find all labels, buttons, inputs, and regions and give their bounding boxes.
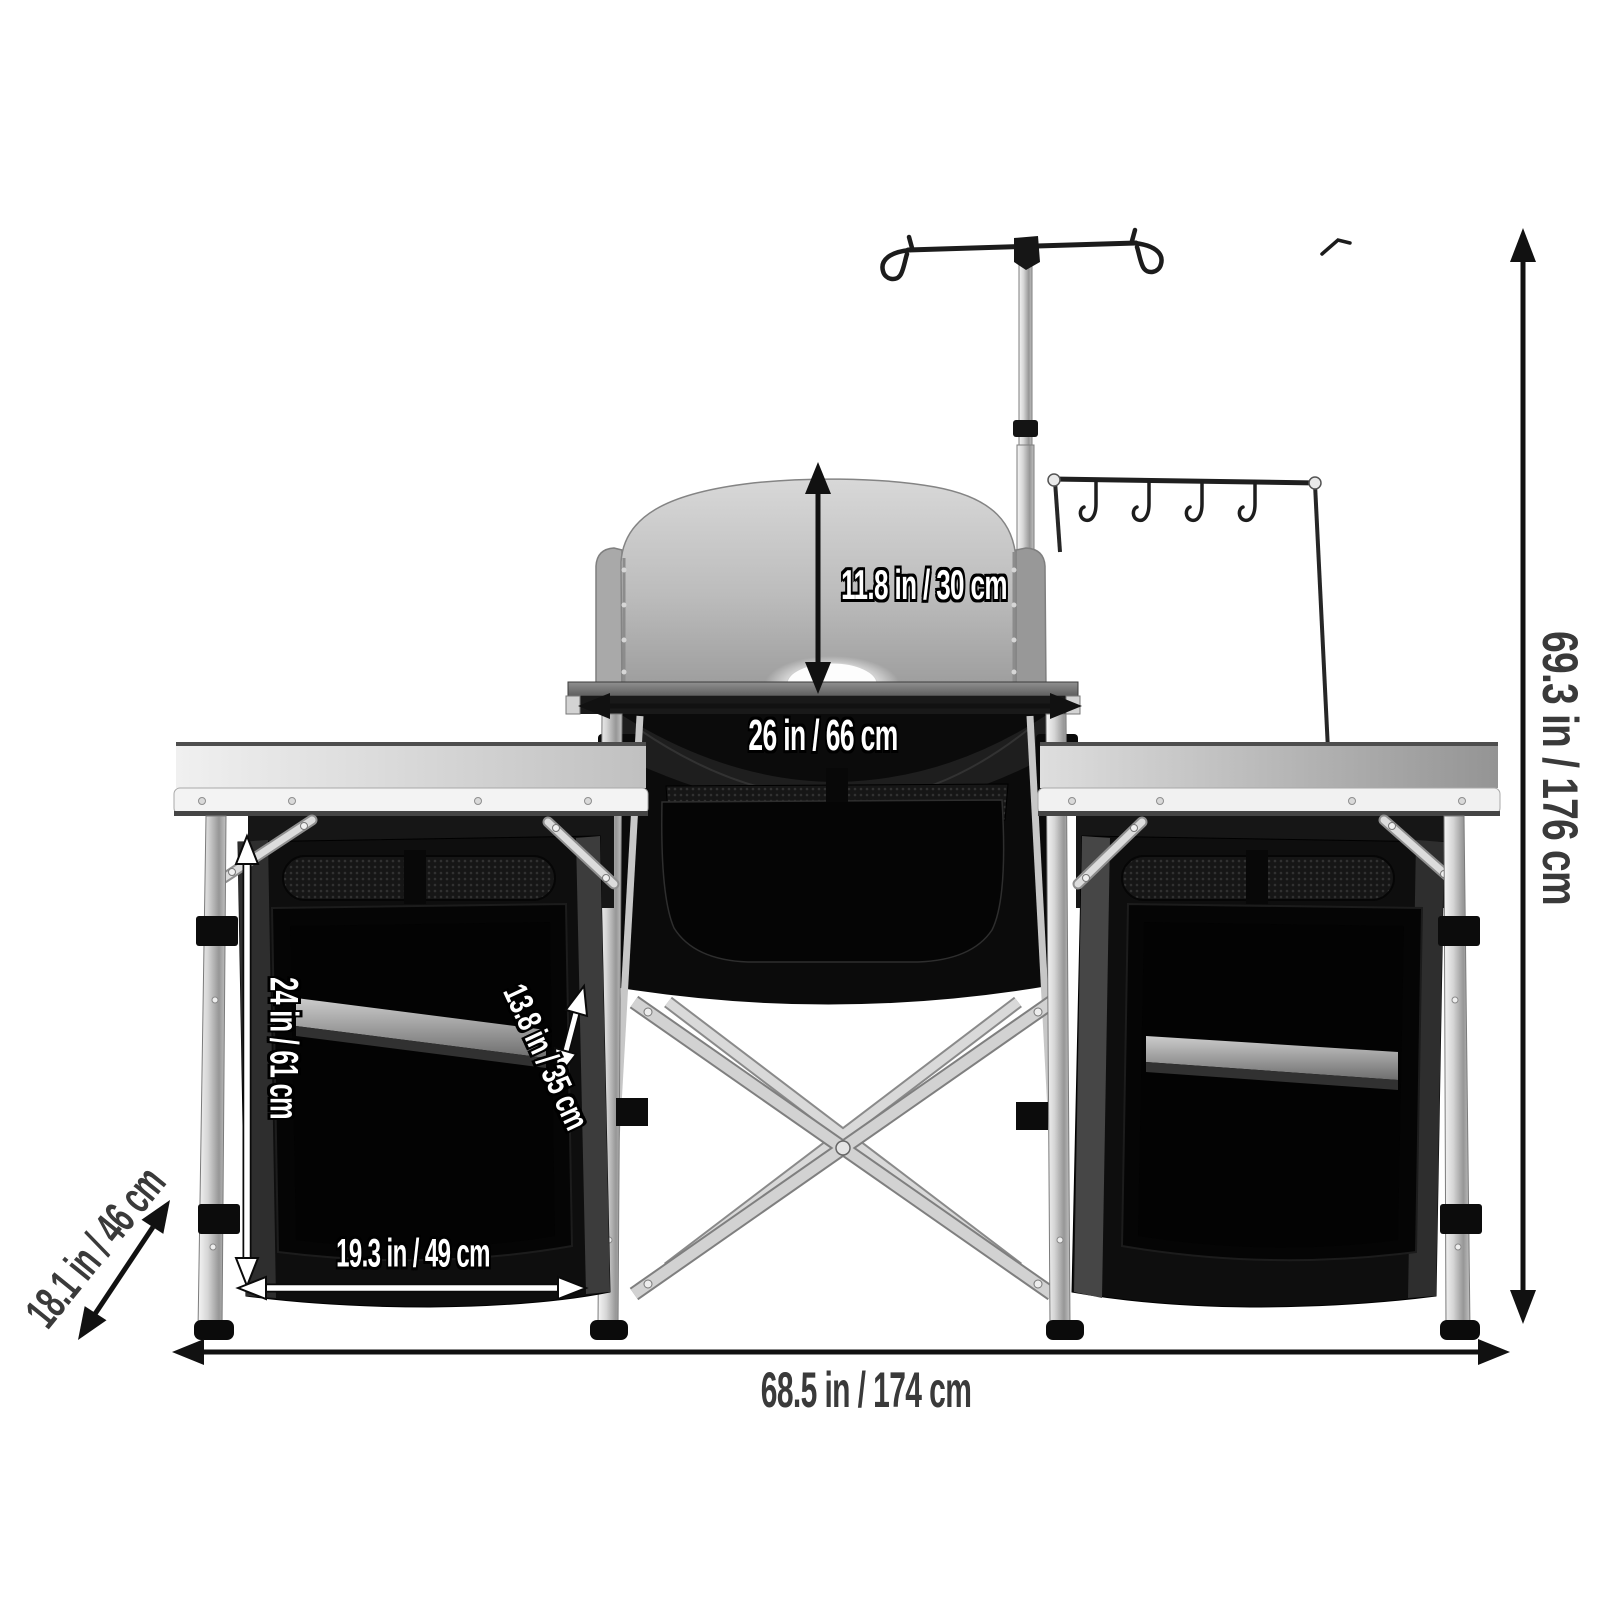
product-illustration (0, 0, 1600, 1600)
leg-strap (196, 916, 238, 946)
leg-strap (1438, 916, 1480, 946)
pole-adjust-collar (1013, 420, 1038, 437)
right-storage-cabinet (1072, 816, 1444, 1307)
dimension-diagram: 11.8 in / 30 cm 26 in / 66 cm 69.3 in / … (0, 0, 1600, 1600)
leg-foot (590, 1320, 628, 1340)
hook-rack (1048, 474, 1328, 750)
leg-foot (194, 1320, 234, 1340)
rack-corner-joint (1048, 474, 1060, 486)
lantern-hanger-hooks (882, 230, 1350, 279)
leg-strap (1016, 1102, 1048, 1130)
right-side-table (1038, 742, 1500, 816)
label-windscreen-height: 11.8 in / 30 cm (841, 561, 1007, 609)
x-frame-hub-rivet (836, 1141, 850, 1155)
rack-corner-joint (1309, 477, 1321, 489)
leg-foot (1440, 1320, 1480, 1340)
label-cabinet-height: 24 in / 61 cm (261, 977, 306, 1119)
label-cabinet-width: 19.3 in / 49 cm (336, 1232, 490, 1277)
s-hooks (1080, 482, 1255, 520)
center-table (566, 682, 1080, 714)
leg-foot (1046, 1320, 1084, 1340)
windscreen-left-wing (596, 548, 622, 690)
label-total-width: 68.5 in / 174 cm (761, 1361, 972, 1419)
label-center-table-width: 26 in / 66 cm (748, 711, 897, 761)
leg-strap (198, 1204, 240, 1234)
leg-strap (616, 1098, 648, 1126)
pole-top-bracket (1014, 236, 1040, 270)
left-side-table (174, 742, 648, 816)
compartment-opening (662, 800, 1004, 962)
leg-strap (1440, 1204, 1482, 1234)
windscreen-right-wing (1016, 548, 1046, 690)
label-total-height: 69.3 in / 176 cm (1531, 631, 1589, 905)
